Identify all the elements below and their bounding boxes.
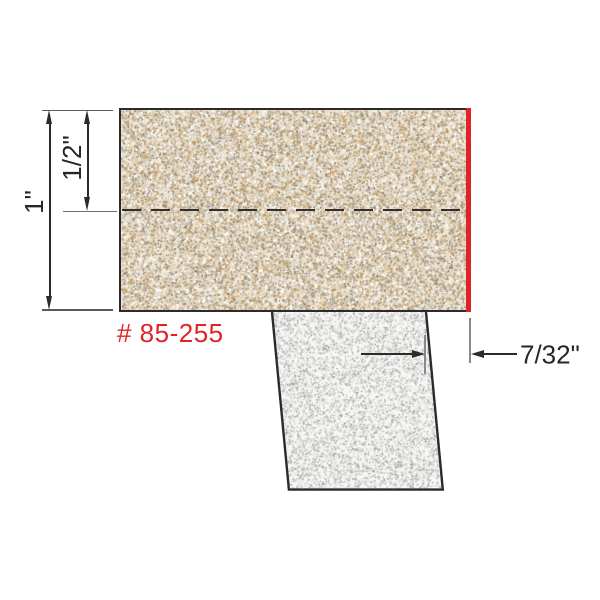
centerline-dashed (122, 209, 466, 212)
extension-line-top (42, 110, 113, 111)
shank-outline (270, 312, 446, 491)
dimension-line-half-in (87, 121, 88, 197)
arrowhead-up-icon (84, 110, 90, 124)
arrowhead-left-icon (471, 350, 484, 358)
leader-line-left (361, 353, 412, 354)
arrowhead-down-icon (84, 197, 90, 211)
trimmed-edge-highlight (466, 108, 471, 312)
extension-line-middle (63, 211, 117, 212)
arrowhead-up-icon (46, 110, 52, 124)
extension-line-bottom (42, 309, 113, 310)
arrowhead-right-icon (412, 350, 425, 358)
dimension-line-1in (49, 121, 50, 297)
dimension-label-1in: 1" (21, 190, 47, 214)
substrate-shank-block (270, 312, 446, 491)
leader-line-right (484, 353, 517, 354)
diagram-canvas: 1" 1/2" 7/32" # 85-255 (0, 0, 600, 600)
dimension-label-half-in: 1/2" (59, 135, 85, 180)
part-number-label: # 85-255 (117, 320, 224, 346)
dimension-label-7-32in: 7/32" (520, 341, 580, 367)
arrowhead-down-icon (46, 296, 52, 310)
